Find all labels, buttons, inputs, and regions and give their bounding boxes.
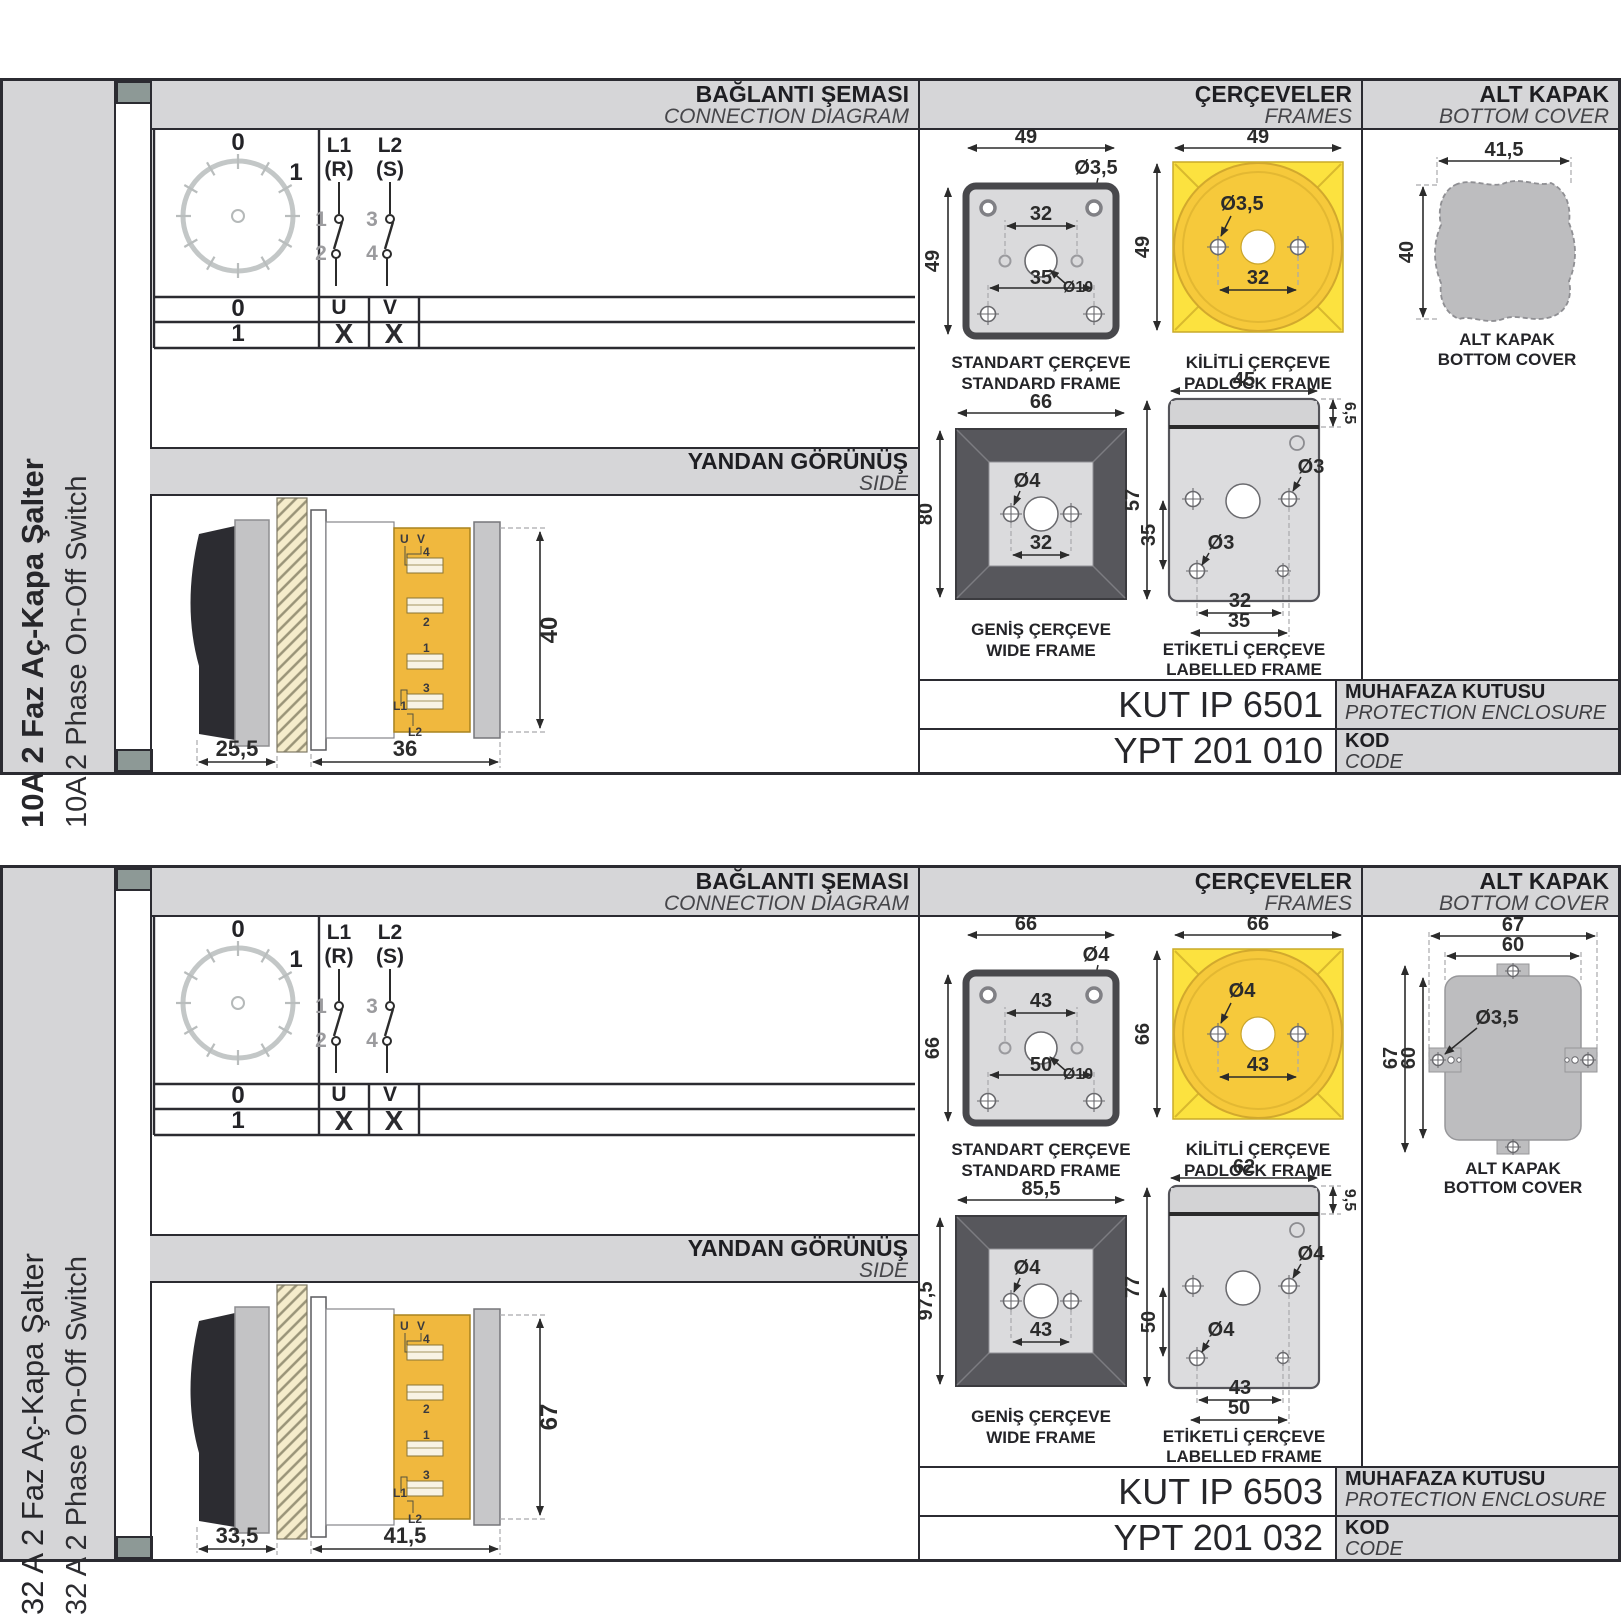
frame-caption-tr: GENİŞ ÇERÇEVE [971, 620, 1111, 639]
standard-frame-drawing: 66 Ø4 43 Ø10 50 66 STANDART ÇERÇEVE STAN… [926, 921, 1142, 1189]
diagram-grid [154, 915, 915, 1135]
header-frames-tr: ÇERÇEVELER [918, 83, 1352, 106]
margin-strip [114, 81, 151, 772]
row0-position: 0 [231, 1082, 244, 1109]
frame-caption-tr: ETİKETLİ ÇERÇEVE [1163, 640, 1325, 659]
frame-caption-tr: ETİKETLİ ÇERÇEVE [1163, 1427, 1325, 1446]
dim-depth-body: 41,5 [384, 1523, 427, 1548]
code-label-en: CODE [1345, 752, 1612, 773]
corner-hole [1087, 988, 1101, 1002]
terminal-2: 2 [423, 1402, 430, 1416]
dim-pitch: 32 [1247, 267, 1269, 289]
row1-u: X [335, 1105, 354, 1136]
header-connection-tr: BAĞLANTI ŞEMASI [150, 870, 909, 893]
dim-pitch: 32 [1030, 532, 1052, 554]
header-connection-en: CONNECTION DIAGRAM [150, 893, 909, 914]
frame-caption-en: LABELLED FRAME [1166, 1447, 1322, 1466]
dim-width: 62 [1233, 1156, 1255, 1178]
terminal-l1: L1 [393, 1486, 407, 1500]
side-view-drawing: U V 4 2 1 3 L1 L2 40 25,5 36 [155, 494, 635, 774]
terminal-u: U [400, 532, 409, 546]
dim-pitch: 32 [1229, 590, 1251, 612]
row0-position: 0 [231, 295, 244, 322]
header-frames: ÇERÇEVELER FRAMES [918, 81, 1361, 130]
connection-diagram: 0 1 L1 (R) L2 (S) 1 2 3 4 [150, 128, 917, 349]
catalog-page: 10A 2 Faz Aç-Kapa Şalter 10A 2 Phase On-… [0, 0, 1623, 1623]
terminal-4: 4 [423, 1332, 430, 1346]
padlock-frame-drawing: 66 Ø4 43 66 KİLİTLİ ÇERÇEVE PADLOCK FRAM… [1143, 921, 1359, 1189]
cover-caption-en: BOTTOM COVER [1444, 1178, 1583, 1197]
cover-body [1435, 181, 1575, 321]
dim-hole-right: Ø4 [1298, 1243, 1326, 1265]
code-label: KOD CODE [1335, 1517, 1618, 1559]
side-view-band: YANDAN GÖRÜNÜŞ SIDE [150, 1234, 918, 1283]
contact-2: 2 [315, 1029, 327, 1052]
product-code: YPT 201 010 [918, 730, 1335, 772]
dim-width: 67 [1502, 914, 1524, 936]
terminal-3: 3 [423, 681, 430, 695]
end-plate [474, 1309, 500, 1525]
output-u: U [331, 296, 346, 319]
frame-caption-en: LABELLED FRAME [1166, 660, 1322, 679]
code-label-en: CODE [1345, 1539, 1612, 1560]
side-view-band: YANDAN GÖRÜNÜŞ SIDE [150, 447, 918, 496]
dim-hole: Ø3,5 [1074, 157, 1117, 179]
enclosure-row: KUT IP 6501 MUHAFAZA KUTUSU PROTECTION E… [918, 679, 1618, 728]
side-view-tr: YANDAN GÖRÜNÜŞ [150, 1237, 908, 1260]
dim-width: 66 [1015, 913, 1037, 935]
dim-width: 66 [1247, 913, 1269, 935]
product-title-tr: 32 A 2 Faz Aç-Kapa Şalter [15, 1253, 51, 1615]
dim-height-inner: 35 [1138, 524, 1160, 546]
contact-4: 4 [366, 242, 378, 265]
dim-depth-front: 33,5 [216, 1523, 259, 1548]
header-cover-tr: ALT KAPAK [1361, 870, 1609, 893]
header-connection-diagram: BAĞLANTI ŞEMASI CONNECTION DIAGRAM [150, 868, 918, 917]
center-hole [1024, 1284, 1058, 1318]
pole-l1-label: L1 [327, 134, 352, 157]
dim-height: 49 [1132, 236, 1154, 258]
product-sidebar: 32 A 2 Faz Aç-Kapa Şalter 32 A 2 Phase O… [3, 868, 114, 1559]
corner-hole [1290, 436, 1304, 450]
dim-hole: Ø4 [1014, 1257, 1042, 1279]
product-title-tr: 10A 2 Faz Aç-Kapa Şalter [15, 458, 51, 828]
dim-pitch: 43 [1030, 990, 1052, 1012]
enclosure-label-en: PROTECTION ENCLOSURE [1345, 703, 1612, 724]
contact-2: 2 [315, 242, 327, 265]
side-view-drawing: U V 4 2 1 3 L1 L2 67 33,5 41,5 [155, 1281, 635, 1561]
pole-l1-phase: (R) [324, 158, 353, 181]
header-connection-tr: BAĞLANTI ŞEMASI [150, 83, 909, 106]
switch-poles: L1 (R) L2 (S) 1 2 3 4 U V [315, 134, 404, 319]
enclosure-code: KUT IP 6503 [918, 1468, 1335, 1515]
wide-frame-drawing: 66 Ø4 32 80 GENİŞ ÇERÇEVE WIDE FRAME [926, 399, 1142, 667]
dim-hole-right: Ø3 [1298, 456, 1325, 478]
dim-hole: Ø4 [1014, 470, 1042, 492]
cover-caption-tr: ALT KAPAK [1465, 1159, 1561, 1178]
enclosure-label-tr: MUHAFAZA KUTUSU [1345, 682, 1612, 703]
product-section: 10A 2 Faz Aç-Kapa Şalter 10A 2 Phase On-… [0, 78, 1621, 775]
dim-height: 49 [922, 250, 944, 272]
dial-position-0: 0 [231, 129, 244, 156]
row1-position: 1 [231, 320, 244, 347]
cover-caption-en: BOTTOM COVER [1438, 350, 1577, 369]
center-hole [1241, 230, 1275, 264]
side-view-tr: YANDAN GÖRÜNÜŞ [150, 450, 908, 473]
product-code: YPT 201 032 [918, 1517, 1335, 1559]
header-frames-tr: ÇERÇEVELER [918, 870, 1352, 893]
header-frames: ÇERÇEVELER FRAMES [918, 868, 1361, 917]
panel-hatched [277, 498, 307, 752]
rotary-dial: 0 1 [176, 916, 303, 1065]
enclosure-label-tr: MUHAFAZA KUTUSU [1345, 1469, 1612, 1490]
pole-l2-label: L2 [378, 921, 403, 944]
dim-height: 40 [536, 617, 563, 644]
dim-height: 66 [922, 1037, 944, 1059]
label-strip [1171, 1188, 1317, 1212]
frame-caption-tr: STANDART ÇERÇEVE [951, 1140, 1130, 1159]
dim-height-inner: 50 [1138, 1311, 1160, 1333]
padlock-frame-drawing: 49 Ø3,5 32 49 KİLİTLİ ÇERÇEVE PADLOCK FR… [1143, 134, 1359, 402]
terminal-v: V [417, 1319, 425, 1333]
dim-width: 45 [1233, 369, 1255, 391]
output-v: V [383, 1083, 397, 1106]
pole-l2-phase: (S) [376, 945, 404, 968]
output-u: U [331, 1083, 346, 1106]
dim-pitch: 32 [1030, 203, 1052, 225]
frame-caption-tr: KİLİTLİ ÇERÇEVE [1186, 1140, 1331, 1159]
mounting-plate [235, 1307, 269, 1533]
dim-hole: Ø3,5 [1475, 1007, 1518, 1029]
enclosure-row: KUT IP 6503 MUHAFAZA KUTUSU PROTECTION E… [918, 1466, 1618, 1515]
terminal-l1: L1 [393, 699, 407, 713]
product-section: 32 A 2 Faz Aç-Kapa Şalter 32 A 2 Phase O… [0, 865, 1621, 1562]
dim-pitch2: 50 [1228, 1397, 1250, 1419]
wide-frame-drawing: 85,5 Ø4 43 97,5 GENİŞ ÇERÇEVE WIDE FRAME [926, 1186, 1142, 1454]
switch-body [326, 1309, 394, 1525]
corner-hole [1290, 1223, 1304, 1237]
dim-depth-body: 36 [393, 736, 417, 761]
frame-plate [311, 1297, 326, 1537]
output-v: V [383, 296, 397, 319]
enclosure-label: MUHAFAZA KUTUSU PROTECTION ENCLOSURE [1335, 1468, 1618, 1515]
divider [918, 81, 920, 772]
end-plate [474, 522, 500, 738]
terminal-1: 1 [423, 1428, 430, 1442]
dim-strip: 6,5 [1341, 402, 1358, 424]
center-hole [1226, 1271, 1260, 1305]
dial-position-1: 1 [289, 946, 302, 973]
contact-1: 1 [315, 208, 327, 231]
code-row: YPT 201 010 KOD CODE [918, 728, 1618, 772]
dim-pitch2: 35 [1030, 267, 1052, 289]
terminal-4: 4 [423, 545, 430, 559]
bottom-cover-drawing: 67 60 Ø3,5 67 60 ALT KAPAK BOTTOM COVER [1371, 924, 1621, 1196]
mounting-plate [235, 520, 269, 746]
header-bottom-cover: ALT KAPAK BOTTOM COVER [1361, 81, 1618, 130]
dim-width: 85,5 [1022, 1178, 1061, 1200]
dim-width: 66 [1030, 391, 1052, 413]
pole-l2-label: L2 [378, 134, 403, 157]
row1-v: X [385, 1105, 404, 1136]
dim-pitch: 43 [1030, 1319, 1052, 1341]
row1-u: X [335, 318, 354, 349]
standard-frame-drawing: 49 Ø3,5 32 Ø10 35 49 STANDART ÇERÇEVE ST… [926, 134, 1142, 402]
terminal-u: U [400, 1319, 409, 1333]
terminal-3: 3 [423, 1468, 430, 1482]
cover-caption-tr: ALT KAPAK [1459, 330, 1555, 349]
bottom-cover-drawing: 41,5 40 ALT KAPAK BOTTOM COVER [1371, 147, 1621, 369]
dim-pitch: 43 [1229, 1377, 1251, 1399]
switch-handle [191, 1313, 236, 1527]
enclosure-label: MUHAFAZA KUTUSU PROTECTION ENCLOSURE [1335, 681, 1618, 728]
dim-height: 80 [915, 503, 937, 525]
product-title-en: 32 A 2 Phase On-Off Switch [61, 1256, 94, 1615]
dim-height: 57 [1122, 489, 1144, 511]
corner-hole [1087, 201, 1101, 215]
dim-height: 66 [1132, 1023, 1154, 1045]
dim-hole-left: Ø4 [1208, 1319, 1236, 1341]
header-bottom-cover: ALT KAPAK BOTTOM COVER [1361, 868, 1618, 917]
header-cover-en: BOTTOM COVER [1361, 893, 1609, 914]
dim-height: 77 [1122, 1276, 1144, 1298]
side-view-en: SIDE [150, 1260, 908, 1281]
code-label-tr: KOD [1345, 731, 1612, 752]
switch-body [326, 522, 394, 738]
dim-depth-front: 25,5 [216, 736, 259, 761]
pole-l1-label: L1 [327, 921, 352, 944]
frame-caption-en: WIDE FRAME [986, 641, 1096, 660]
corner-hole [981, 201, 995, 215]
terminal-2: 2 [423, 615, 430, 629]
frame-caption-tr: STANDART ÇERÇEVE [951, 353, 1130, 372]
enclosure-label-en: PROTECTION ENCLOSURE [1345, 1490, 1612, 1511]
connection-diagram: 0 1 L1 (R) L2 (S) 1 2 3 4 [150, 915, 917, 1136]
code-label-tr: KOD [1345, 1518, 1612, 1539]
cover-body [1445, 976, 1581, 1140]
switch-handle [191, 526, 236, 740]
dim-hole-left: Ø3 [1208, 532, 1235, 554]
corner-marker-top [116, 868, 153, 891]
dim-width2: 60 [1502, 934, 1524, 956]
contact-4: 4 [366, 1029, 378, 1052]
margin-strip [114, 868, 151, 1559]
dim-height2: 60 [1398, 1047, 1420, 1069]
pole-l1-phase: (R) [324, 945, 353, 968]
corner-marker-bottom [116, 1536, 153, 1559]
side-view-en: SIDE [150, 473, 908, 494]
labelled-frame-drawing: 45 6,5 Ø3 Ø3 57 35 32 35 ETİKETLİ ÇERÇEV… [1131, 377, 1371, 677]
header-frames-en: FRAMES [918, 106, 1352, 127]
dim-hole: Ø4 [1229, 980, 1257, 1002]
dial-position-0: 0 [231, 916, 244, 943]
contact-3: 3 [366, 208, 378, 231]
product-sidebar: 10A 2 Faz Aç-Kapa Şalter 10A 2 Phase On-… [3, 81, 114, 772]
header-cover-en: BOTTOM COVER [1361, 106, 1609, 127]
labelled-frame-drawing: 62 9,5 Ø4 Ø4 77 50 43 50 ETİKETLİ ÇERÇEV… [1131, 1164, 1371, 1464]
dim-pitch2: 50 [1030, 1054, 1052, 1076]
dim-strip: 9,5 [1341, 1189, 1358, 1211]
center-hole [1226, 484, 1260, 518]
diagram-grid [154, 128, 915, 348]
product-title-en: 10A 2 Phase On-Off Switch [61, 476, 94, 829]
code-row: YPT 201 032 KOD CODE [918, 1515, 1618, 1559]
header-frames-en: FRAMES [918, 893, 1352, 914]
dim-pitch2: 35 [1228, 610, 1250, 632]
center-hole [1024, 497, 1058, 531]
header-cover-tr: ALT KAPAK [1361, 83, 1609, 106]
switch-poles: L1 (R) L2 (S) 1 2 3 4 U V [315, 921, 404, 1106]
row1-position: 1 [231, 1107, 244, 1134]
corner-hole [981, 988, 995, 1002]
panel-hatched [277, 1285, 307, 1539]
dim-height: 97,5 [915, 1282, 937, 1321]
header-connection-diagram: BAĞLANTI ŞEMASI CONNECTION DIAGRAM [150, 81, 918, 130]
dial-position-1: 1 [289, 159, 302, 186]
dim-hole: Ø4 [1083, 944, 1111, 966]
frame-plate [311, 510, 326, 750]
divider [918, 868, 920, 1559]
dim-pitch: 43 [1247, 1054, 1269, 1076]
frame-caption-tr: KİLİTLİ ÇERÇEVE [1186, 353, 1331, 372]
dim-width: 49 [1015, 126, 1037, 148]
terminal-v: V [417, 532, 425, 546]
rotary-dial: 0 1 [176, 129, 303, 278]
row1-v: X [385, 318, 404, 349]
terminal-1: 1 [423, 641, 430, 655]
contact-1: 1 [315, 995, 327, 1018]
header-connection-en: CONNECTION DIAGRAM [150, 106, 909, 127]
dim-hole: Ø3,5 [1220, 193, 1263, 215]
enclosure-code: KUT IP 6501 [918, 681, 1335, 728]
label-strip [1171, 401, 1317, 425]
contact-3: 3 [366, 995, 378, 1018]
dim-width: 41,5 [1485, 139, 1524, 161]
dim-height: 67 [536, 1404, 563, 1431]
code-label: KOD CODE [1335, 730, 1618, 772]
frame-caption-en: WIDE FRAME [986, 1428, 1096, 1447]
corner-marker-bottom [116, 749, 153, 772]
dim-width: 49 [1247, 126, 1269, 148]
frame-caption-tr: GENİŞ ÇERÇEVE [971, 1407, 1111, 1426]
corner-marker-top [116, 81, 153, 104]
dim-height: 40 [1396, 241, 1418, 263]
pole-l2-phase: (S) [376, 158, 404, 181]
center-hole [1241, 1017, 1275, 1051]
